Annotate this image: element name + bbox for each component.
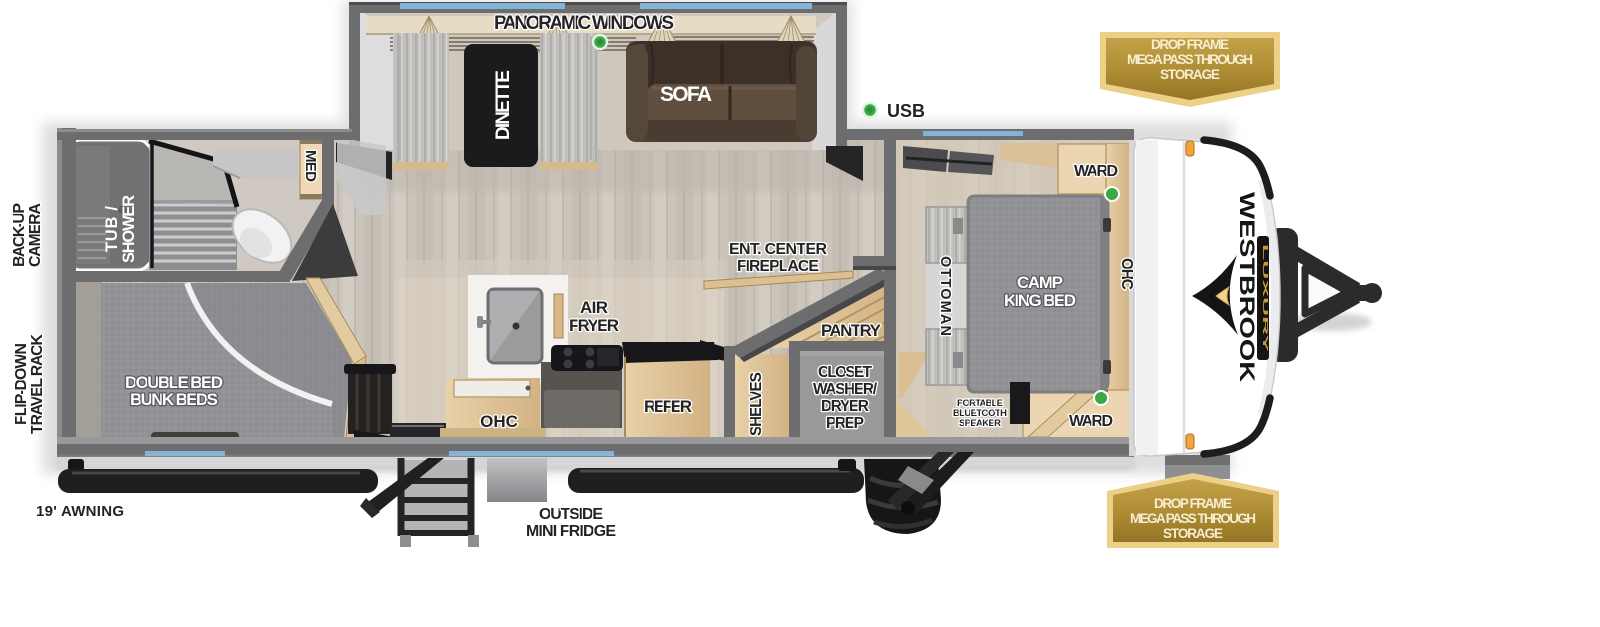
svg-text:ENT. CENTER: ENT. CENTER [729,241,827,258]
svg-text:CAMERA: CAMERA [27,203,44,267]
svg-text:OUTSIDE: OUTSIDE [539,506,603,523]
svg-text:SOFA: SOFA [660,83,712,106]
svg-text:CAMP: CAMP [1017,273,1063,292]
svg-text:PANORAMIC WINDOWS: PANORAMIC WINDOWS [494,13,674,34]
svg-text:WARD: WARD [1074,163,1118,180]
svg-text:BUNK BEDS: BUNK BEDS [130,390,218,409]
svg-text:MED: MED [302,150,319,182]
svg-text:DRYER: DRYER [821,398,869,415]
svg-text:FRYER: FRYER [569,316,619,335]
svg-text:OTTOMAN: OTTOMAN [937,256,953,336]
svg-text:KING BED: KING BED [1004,291,1076,310]
svg-text:LUXURY: LUXURY [1261,244,1270,352]
svg-text:TUB /: TUB / [103,206,121,252]
svg-text:OHC: OHC [480,412,518,431]
svg-text:DROP FRAME: DROP FRAME [1154,496,1232,511]
svg-text:CLOSET: CLOSET [818,364,873,381]
svg-text:USB: USB [887,101,925,121]
svg-text:PANTRY: PANTRY [821,321,882,340]
svg-text:STORAGE: STORAGE [1160,67,1220,82]
svg-text:SHOWER: SHOWER [120,195,138,263]
svg-text:WARD: WARD [1069,413,1113,430]
svg-text:WESTBROOK: WESTBROOK [1235,192,1258,382]
svg-text:WASHER/: WASHER/ [813,381,878,398]
svg-text:MEGA PASS THROUGH: MEGA PASS THROUGH [1130,511,1256,526]
svg-text:TRAVEL RACK: TRAVEL RACK [29,334,46,434]
svg-text:SPEAKER: SPEAKER [959,418,1001,429]
svg-text:REFER: REFER [644,397,692,416]
svg-text:BACK-UP: BACK-UP [11,203,28,267]
svg-text:MINI FRIDGE: MINI FRIDGE [526,523,616,540]
svg-text:FLIP-DOWN: FLIP-DOWN [13,343,30,425]
svg-text:19' AWNING: 19' AWNING [36,503,124,520]
svg-text:PREP: PREP [826,415,864,432]
svg-text:STORAGE: STORAGE [1163,526,1223,541]
svg-text:OHC: OHC [1118,258,1135,290]
svg-text:MEGA PASS THROUGH: MEGA PASS THROUGH [1127,52,1253,67]
svg-text:DINETTE: DINETTE [493,70,514,140]
svg-text:DROP FRAME: DROP FRAME [1151,37,1229,52]
svg-text:FIREPLACE: FIREPLACE [737,258,819,275]
svg-text:AIR: AIR [580,298,608,317]
svg-text:SHELVES: SHELVES [748,372,765,436]
